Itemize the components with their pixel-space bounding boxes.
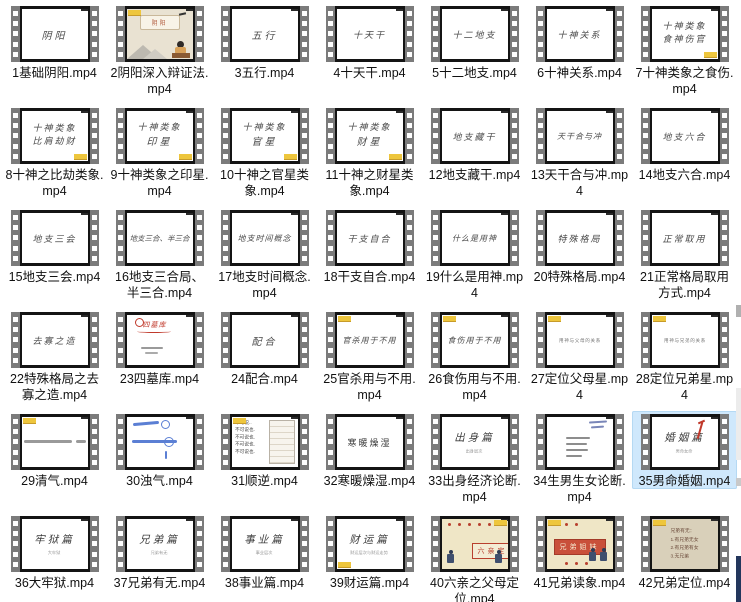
sprocket-hole-icon (13, 31, 18, 36)
file-item-40[interactable]: 六亲定位 40六亲之父母定位.mp4 (422, 513, 527, 602)
sprocket-hole-icon (223, 541, 228, 546)
sprocket-hole-icon (328, 154, 333, 159)
file-item-15[interactable]: 地支三会 15地支三会.mp4 (2, 207, 107, 285)
sprocket-hole-icon (302, 460, 307, 465)
sprocket-hole-icon (433, 521, 438, 526)
sprocket-hole-icon (617, 144, 622, 149)
sprocket-hole-icon (512, 215, 517, 220)
sprocket-hole-icon (407, 348, 412, 353)
sprocket-hole-icon (92, 113, 97, 118)
sprocket-hole-icon (118, 450, 123, 455)
sprocket-hole-icon (328, 52, 333, 57)
file-item-11[interactable]: 十神类象财星 11十神之财星类象.mp4 (317, 105, 422, 199)
sprocket-hole-icon (13, 460, 18, 465)
thumbnail-title: 出身篇 (454, 430, 495, 445)
file-item-7[interactable]: 十神类象食神伤官 7十神类象之食伤.mp4 (632, 3, 737, 97)
sprocket-hole-icon (328, 429, 333, 434)
sprocket-hole-icon (617, 123, 622, 128)
sprocket-hole-icon (512, 358, 517, 363)
video-thumbnail: 用神与父母的关系 (536, 312, 624, 368)
sprocket-hole-icon (92, 348, 97, 353)
thumbnail-title: 十神类象 (662, 21, 706, 35)
sprocket-hole-icon (328, 144, 333, 149)
sprocket-hole-icon (433, 11, 438, 16)
sprocket-hole-icon (433, 21, 438, 26)
file-item-31[interactable]: 不可说..不可说也.不可说也.不可说也.不可说也. 31顺逆.mp4 (212, 411, 317, 489)
video-thumbnail: 寒暖燥湿 (326, 414, 414, 470)
sprocket-hole-icon (197, 552, 202, 557)
sprocket-hole-icon (617, 337, 622, 342)
file-item-10[interactable]: 十神类象官星 10十神之官星类象.mp4 (212, 105, 317, 199)
file-item-41[interactable]: 兄弟姐妹 41兄弟读象.mp4 (527, 513, 632, 591)
list-line (566, 455, 582, 457)
sprocket-hole-icon (197, 144, 202, 149)
sprocket-hole-icon (302, 256, 307, 261)
sprocket-hole-icon (302, 144, 307, 149)
sprocket-hole-icon (512, 317, 517, 322)
bookmark-badge (233, 418, 246, 424)
reference-table (269, 420, 295, 464)
thumbnail-title: 天干合与冲 (557, 131, 602, 142)
topic-list-line: 2.有兄弟有女 (670, 544, 698, 552)
sprocket-hole-icon (13, 235, 18, 240)
video-thumbnail: 五行 (221, 6, 309, 62)
video-thumbnail: 兄弟篇兄弟有无 (116, 516, 204, 572)
file-item-9[interactable]: 十神类象印星 9十神类象之印星.mp4 (107, 105, 212, 199)
film-strip-right (720, 312, 729, 368)
thumbnail-frame: 官杀用于不用 (335, 312, 405, 368)
sprocket-hole-icon (407, 429, 412, 434)
file-item-29[interactable]: 29清气.mp4 (2, 411, 107, 489)
file-name: 41兄弟读象.mp4 (534, 575, 626, 591)
file-item-14[interactable]: 地支六合 14地支六合.mp4 (632, 105, 737, 183)
file-name: 9十神类象之印星.mp4 (110, 167, 209, 199)
file-name: 17地支时间概念.mp4 (215, 269, 314, 301)
file-name: 10十神之官星类象.mp4 (215, 167, 314, 199)
sprocket-hole-icon (722, 113, 727, 118)
sprocket-hole-icon (223, 256, 228, 261)
sprocket-hole-icon (433, 552, 438, 557)
sprocket-hole-icon (407, 225, 412, 230)
sprocket-hole-icon (538, 225, 543, 230)
file-item-30[interactable]: 30浊气.mp4 (107, 411, 212, 489)
thumbnail-frame: 用神与兄弟的关系 (650, 312, 720, 368)
sprocket-hole-icon (617, 246, 622, 251)
sprocket-hole-icon (512, 225, 517, 230)
sprocket-hole-icon (617, 541, 622, 546)
sprocket-hole-icon (538, 21, 543, 26)
sprocket-hole-icon (617, 521, 622, 526)
thumbnail-title: 去寡之造 (32, 334, 76, 347)
thumbnail-title: 用神与父母的关系 (559, 337, 601, 344)
film-strip-right (615, 210, 624, 266)
sprocket-hole-icon (13, 21, 18, 26)
sprocket-hole-icon (512, 327, 517, 332)
sprocket-hole-icon (92, 31, 97, 36)
rule-list-line: 不可说也. (235, 442, 255, 449)
sprocket-hole-icon (197, 235, 202, 240)
film-strip-left (326, 414, 335, 470)
file-item-28[interactable]: 用神与兄弟的关系 28定位兄弟星.mp4 (632, 309, 737, 403)
sprocket-hole-icon (328, 235, 333, 240)
sprocket-hole-icon (538, 246, 543, 251)
sprocket-hole-icon (197, 11, 202, 16)
sprocket-hole-icon (433, 327, 438, 332)
thumbnail-title: 兄弟篇 (139, 532, 180, 547)
sprocket-hole-icon (538, 358, 543, 363)
video-thumbnail: 十二地支 (431, 6, 519, 62)
sprocket-hole-icon (197, 429, 202, 434)
topic-list-line: 1.有兄弟无女 (670, 536, 698, 544)
sprocket-hole-icon (197, 541, 202, 546)
dot-icon (478, 523, 481, 526)
film-strip-left (536, 516, 545, 572)
rule-list-line: 不可说也. (235, 449, 255, 456)
film-strip-right (405, 312, 414, 368)
sprocket-hole-icon (92, 11, 97, 16)
film-strip-left (116, 516, 125, 572)
file-item-13[interactable]: 天干合与冲 13天干合与冲.mp4 (527, 105, 632, 199)
video-thumbnail (11, 414, 99, 470)
video-thumbnail: 特殊格局 (536, 210, 624, 266)
sprocket-hole-icon (538, 552, 543, 557)
sprocket-hole-icon (92, 552, 97, 557)
sprocket-hole-icon (92, 215, 97, 220)
file-item-4[interactable]: 十天干 4十天干.mp4 (317, 3, 422, 81)
sprocket-hole-icon (223, 439, 228, 444)
sprocket-hole-icon (538, 113, 543, 118)
file-item-6[interactable]: 十神关系 6十神关系.mp4 (527, 3, 632, 81)
sprocket-hole-icon (617, 531, 622, 536)
film-strip-left (536, 312, 545, 368)
file-name: 1基础阴阳.mp4 (12, 65, 97, 81)
file-name: 6十神关系.mp4 (537, 65, 622, 81)
sprocket-hole-icon (118, 113, 123, 118)
sprocket-hole-icon (302, 113, 307, 118)
thumbnail-title: 干支自合 (347, 232, 391, 245)
dot-icon (575, 562, 578, 565)
sprocket-hole-icon (223, 358, 228, 363)
sprocket-hole-icon (118, 123, 123, 128)
film-strip-left (326, 210, 335, 266)
sprocket-hole-icon (13, 225, 18, 230)
sprocket-hole-icon (118, 317, 123, 322)
thumbnail-title: 地支三合、半三合 (130, 233, 190, 244)
video-thumbnail: 地支三会 (11, 210, 99, 266)
sprocket-hole-icon (407, 419, 412, 424)
sprocket-hole-icon (722, 31, 727, 36)
video-thumbnail: 地支六合 (641, 108, 729, 164)
file-name: 38事业篇.mp4 (225, 575, 304, 591)
sprocket-hole-icon (617, 225, 622, 230)
sprocket-hole-icon (538, 256, 543, 261)
sprocket-hole-icon (302, 235, 307, 240)
sprocket-hole-icon (197, 358, 202, 363)
file-name: 22特殊格局之去寡之造.mp4 (5, 371, 104, 403)
sprocket-hole-icon (223, 144, 228, 149)
sprocket-hole-icon (617, 439, 622, 444)
film-strip-right (615, 108, 624, 164)
video-thumbnail: 正常取用 (641, 210, 729, 266)
sprocket-hole-icon (118, 42, 123, 47)
sprocket-hole-icon (118, 429, 123, 434)
sprocket-hole-icon (538, 521, 543, 526)
sprocket-hole-icon (538, 154, 543, 159)
sprocket-hole-icon (407, 358, 412, 363)
sprocket-hole-icon (722, 256, 727, 261)
sprocket-hole-icon (302, 429, 307, 434)
sprocket-hole-icon (643, 31, 648, 36)
file-name: 35男命婚姻.mp4 (639, 473, 731, 489)
dot-icon (585, 562, 588, 565)
sprocket-hole-icon (197, 246, 202, 251)
film-strip-left (326, 108, 335, 164)
file-item-1[interactable]: 阴阳 1基础阴阳.mp4 (2, 3, 107, 81)
video-thumbnail: 官杀用于不用 (326, 312, 414, 368)
sprocket-hole-icon (538, 562, 543, 567)
sprocket-hole-icon (512, 123, 517, 128)
film-strip-left (326, 312, 335, 368)
sprocket-hole-icon (328, 358, 333, 363)
sprocket-hole-icon (512, 419, 517, 424)
sprocket-hole-icon (433, 31, 438, 36)
sprocket-hole-icon (13, 42, 18, 47)
video-thumbnail: 六亲定位 (431, 516, 519, 572)
sprocket-hole-icon (722, 215, 727, 220)
sprocket-hole-icon (643, 450, 648, 455)
file-item-26[interactable]: 食伤用于不用 26食伤用与不用.mp4 (422, 309, 527, 403)
bookmark-badge (443, 316, 456, 322)
clipped-item-fragment (736, 556, 741, 602)
red-underline-curve (137, 330, 171, 333)
film-strip-left (221, 516, 230, 572)
file-item-21[interactable]: 正常取用 21正常格局取用方式.mp4 (632, 207, 737, 301)
sprocket-hole-icon (223, 450, 228, 455)
file-item-3[interactable]: 五行 3五行.mp4 (212, 3, 317, 81)
sprocket-hole-icon (722, 42, 727, 47)
file-item-20[interactable]: 特殊格局 20特殊格局.mp4 (527, 207, 632, 285)
sprocket-hole-icon (328, 439, 333, 444)
sprocket-hole-icon (722, 21, 727, 26)
sprocket-hole-icon (328, 541, 333, 546)
sprocket-hole-icon (433, 348, 438, 353)
file-item-23[interactable]: 四墓库 23四墓库.mp4 (107, 309, 212, 387)
file-item-25[interactable]: 官杀用于不用 25官杀用与不用.mp4 (317, 309, 422, 403)
film-strip-left (11, 312, 20, 368)
sprocket-hole-icon (13, 113, 18, 118)
sprocket-hole-icon (643, 521, 648, 526)
file-item-16[interactable]: 地支三合、半三合 16地支三合局、半三合.mp4 (107, 207, 212, 301)
sprocket-hole-icon (118, 246, 123, 251)
file-item-27[interactable]: 用神与父母的关系 27定位父母星.mp4 (527, 309, 632, 403)
sprocket-hole-icon (512, 562, 517, 567)
sprocket-hole-icon (197, 562, 202, 567)
sprocket-hole-icon (722, 123, 727, 128)
film-strip-right (90, 210, 99, 266)
cartoon-figure (589, 548, 597, 561)
sprocket-hole-icon (118, 419, 123, 424)
file-item-36[interactable]: 牢狱篇大牢狱 36大牢狱.mp4 (2, 513, 107, 591)
file-item-35[interactable]: 婚姻篇男命女命 35男命婚姻.mp4 (632, 411, 737, 489)
file-name: 42兄弟定位.mp4 (639, 575, 731, 591)
sprocket-hole-icon (118, 144, 123, 149)
sprocket-hole-icon (617, 11, 622, 16)
thumbnail-subtitle: 出身层次 (466, 447, 483, 453)
file-name: 29清气.mp4 (21, 473, 88, 489)
thumbnail-frame: 六亲定位 (440, 516, 510, 572)
sprocket-hole-icon (13, 256, 18, 261)
file-item-8[interactable]: 十神类象比肩劫财 8十神之比劫类象.mp4 (2, 105, 107, 199)
sprocket-hole-icon (302, 348, 307, 353)
sprocket-hole-icon (92, 317, 97, 322)
file-item-22[interactable]: 去寡之造 22特殊格局之去寡之造.mp4 (2, 309, 107, 403)
film-strip-left (221, 414, 230, 470)
dot-divider (547, 562, 613, 565)
bookmark-badge (74, 154, 87, 160)
clipped-item-fragment (736, 478, 741, 486)
blue-circle-mark (164, 437, 174, 447)
film-strip-left (326, 516, 335, 572)
file-item-32[interactable]: 寒暖燥湿 32寒暖燥湿.mp4 (317, 411, 422, 489)
sprocket-hole-icon (407, 113, 412, 118)
sprocket-hole-icon (512, 531, 517, 536)
video-thumbnail: 配合 (221, 312, 309, 368)
thumbnail-frame (545, 414, 615, 470)
film-strip-left (11, 414, 20, 470)
file-item-19[interactable]: 什么是用神 19什么是用神.mp4 (422, 207, 527, 301)
sprocket-hole-icon (118, 358, 123, 363)
file-item-12[interactable]: 地支藏干 12地支藏干.mp4 (422, 105, 527, 183)
red-circle-mark (135, 318, 144, 327)
sprocket-hole-icon (722, 11, 727, 16)
file-item-17[interactable]: 地支时间概念 17地支时间概念.mp4 (212, 207, 317, 301)
file-name: 14地支六合.mp4 (639, 167, 731, 183)
sprocket-hole-icon (13, 541, 18, 546)
sprocket-hole-icon (197, 256, 202, 261)
thumbnail-title: 什么是用神 (452, 233, 497, 244)
film-strip-left (326, 6, 335, 62)
sprocket-hole-icon (407, 215, 412, 220)
bookmark-badge (653, 316, 666, 322)
thumbnail-frame: 五行 (230, 6, 300, 62)
file-item-33[interactable]: 出身篇出身层次 33出身经济论断.mp4 (422, 411, 527, 505)
video-thumbnail: 不可说..不可说也.不可说也.不可说也.不可说也. (221, 414, 309, 470)
file-item-37[interactable]: 兄弟篇兄弟有无 37兄弟有无.mp4 (107, 513, 212, 591)
file-name: 31顺逆.mp4 (231, 473, 298, 489)
sprocket-hole-icon (197, 531, 202, 536)
file-item-2[interactable]: 阴阳 2阴阳深入辩证法.mp4 (107, 3, 212, 97)
film-strip-left (221, 108, 230, 164)
sprocket-hole-icon (722, 460, 727, 465)
blue-handwriting (165, 451, 167, 459)
blue-handwriting (588, 420, 606, 423)
cartoon-figure (447, 550, 455, 563)
file-browser-content: 阴阳 1基础阴阳.mp4 阴阳 2阴阳深入辩证法.mp4 五行 3五行.mp4 … (0, 0, 741, 602)
film-strip-right (720, 414, 729, 470)
sprocket-hole-icon (118, 52, 123, 57)
video-thumbnail: 十神类象财星 (326, 108, 414, 164)
sprocket-hole-icon (722, 144, 727, 149)
sprocket-hole-icon (223, 419, 228, 424)
file-name: 2阴阳深入辩证法.mp4 (110, 65, 209, 97)
bookmark-badge (548, 316, 561, 322)
thumbnail-title: 财星 (357, 135, 383, 150)
sprocket-hole-icon (433, 235, 438, 240)
sprocket-hole-icon (118, 133, 123, 138)
sprocket-hole-icon (407, 246, 412, 251)
file-item-34[interactable]: 34生男生女论断.mp4 (527, 411, 632, 505)
sprocket-hole-icon (617, 21, 622, 26)
sprocket-hole-icon (407, 521, 412, 526)
bookmark-badge (284, 154, 297, 160)
sprocket-hole-icon (92, 225, 97, 230)
film-strip-left (431, 6, 440, 62)
file-item-5[interactable]: 十二地支 5十二地支.mp4 (422, 3, 527, 81)
cartoon-figure-body (600, 552, 607, 561)
cartoon-figure (600, 548, 608, 561)
file-name: 5十二地支.mp4 (432, 65, 517, 81)
sprocket-hole-icon (223, 52, 228, 57)
sprocket-hole-icon (328, 348, 333, 353)
video-thumbnail: 地支三合、半三合 (116, 210, 204, 266)
sprocket-hole-icon (643, 225, 648, 230)
file-item-24[interactable]: 配合 24配合.mp4 (212, 309, 317, 387)
sprocket-hole-icon (197, 31, 202, 36)
sprocket-hole-icon (538, 42, 543, 47)
sprocket-hole-icon (302, 562, 307, 567)
film-strip-right (405, 108, 414, 164)
sprocket-hole-icon (328, 246, 333, 251)
file-item-42[interactable]: 兄弟有无：1.有兄弟无女2.有兄弟有女3.无兄弟 42兄弟定位.mp4 (632, 513, 737, 591)
file-item-39[interactable]: 财运篇财运层次与财运走势 39财运篇.mp4 (317, 513, 422, 591)
film-strip-right (615, 516, 624, 572)
blue-circle-mark (161, 420, 170, 429)
file-item-18[interactable]: 干支自合 18干支自合.mp4 (317, 207, 422, 285)
video-thumbnail: 干支自合 (326, 210, 414, 266)
sprocket-hole-icon (223, 521, 228, 526)
video-thumbnail: 什么是用神 (431, 210, 519, 266)
thumbnail-frame: 婚姻篇男命女命 (650, 414, 720, 470)
sprocket-hole-icon (223, 552, 228, 557)
video-thumbnail: 十神类象比肩劫财 (11, 108, 99, 164)
sprocket-hole-icon (328, 521, 333, 526)
dot-icon (448, 523, 451, 526)
file-name: 24配合.mp4 (231, 371, 298, 387)
thumbnail-frame: 兄弟篇兄弟有无 (125, 516, 195, 572)
sprocket-hole-icon (617, 348, 622, 353)
sprocket-hole-icon (118, 154, 123, 159)
sprocket-hole-icon (433, 256, 438, 261)
sprocket-hole-icon (223, 246, 228, 251)
sprocket-hole-icon (512, 429, 517, 434)
film-strip-right (300, 108, 309, 164)
sprocket-hole-icon (407, 337, 412, 342)
sprocket-hole-icon (722, 246, 727, 251)
sprocket-hole-icon (118, 552, 123, 557)
thumbnail-frame: 十神类象印星 (125, 108, 195, 164)
sprocket-hole-icon (223, 562, 228, 567)
film-strip-right (300, 6, 309, 62)
sprocket-hole-icon (13, 358, 18, 363)
thumbnail-frame: 不可说..不可说也.不可说也.不可说也.不可说也. (230, 414, 300, 470)
video-thumbnail: 婚姻篇男命女命 (641, 414, 729, 470)
file-name: 25官杀用与不用.mp4 (320, 371, 419, 403)
sprocket-hole-icon (512, 541, 517, 546)
file-item-38[interactable]: 事业篇事业层次 38事业篇.mp4 (212, 513, 317, 591)
sprocket-hole-icon (512, 52, 517, 57)
sprocket-hole-icon (223, 225, 228, 230)
title-box: 六亲定位 (472, 543, 510, 559)
